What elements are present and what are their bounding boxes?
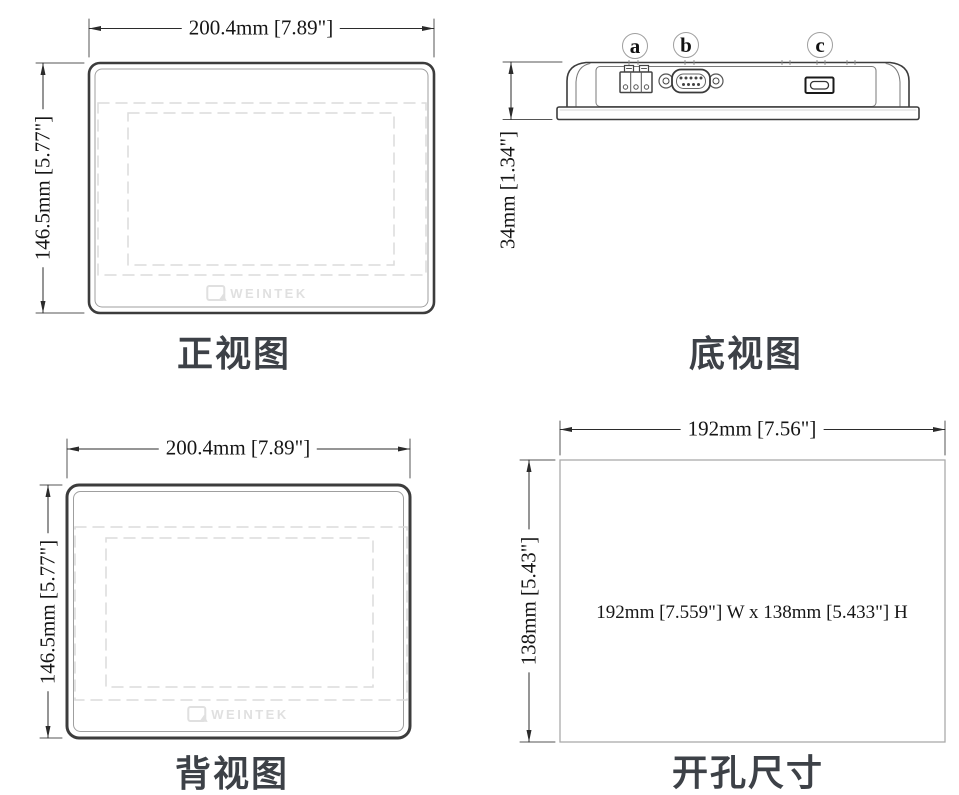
back-height-dimension-label: 146.5mm [5.77"]: [36, 533, 61, 691]
bottom-view-body-outline: [567, 63, 909, 108]
cutout-drawing: [520, 421, 945, 742]
bottom-height-dimension-label: 34mm [1.34"]: [496, 124, 521, 256]
back-view-drawing: [40, 439, 410, 738]
front-height-dimension-label: 146.5mm [5.77"]: [31, 109, 56, 267]
cutout-width-dimension-label: 192mm [7.56"]: [681, 417, 824, 442]
bottom-view-title: 底视图: [689, 325, 803, 377]
weintek-logo-text: WEINTEK: [230, 286, 307, 301]
cutout-size-annotation: 192mm [7.559"] W x 138mm [5.433"] H: [592, 602, 911, 624]
back-view-title: 背视图: [175, 745, 289, 795]
connector-label-a-text: a: [630, 34, 641, 58]
weintek-logo-text: WEINTEK: [211, 707, 288, 722]
connector-label-b-text: b: [680, 33, 692, 57]
back-brand-logo: WEINTEK: [187, 706, 288, 722]
bottom-view-drawing: a b c: [503, 33, 919, 120]
weintek-logo-icon: [187, 706, 206, 722]
front-width-dimension-label: 200.4mm [7.89"]: [182, 16, 340, 41]
micro-usb-port-icon: [806, 78, 834, 94]
drawing-linework: a b c: [0, 0, 959, 795]
bottom-view-extension-lines: [503, 62, 562, 120]
cutout-height-dimension-label: 138mm [5.43"]: [517, 530, 542, 673]
front-view-title: 正视图: [177, 325, 291, 377]
weintek-logo-icon: [206, 285, 225, 301]
cutout-rectangle: [560, 460, 945, 742]
connector-label-a: a: [623, 34, 648, 59]
back-width-dimension-label: 200.4mm [7.89"]: [159, 436, 317, 461]
connector-label-b: b: [674, 33, 699, 58]
connector-label-c-text: c: [815, 33, 824, 57]
bottom-view-bezel-strip: [557, 107, 919, 120]
dimension-drawing-sheet: a b c: [0, 0, 959, 795]
connector-label-c: c: [808, 33, 833, 58]
cutout-view-title: 开孔尺寸: [672, 744, 824, 795]
front-brand-logo: WEINTEK: [206, 285, 307, 301]
front-view-drawing: [36, 19, 434, 313]
